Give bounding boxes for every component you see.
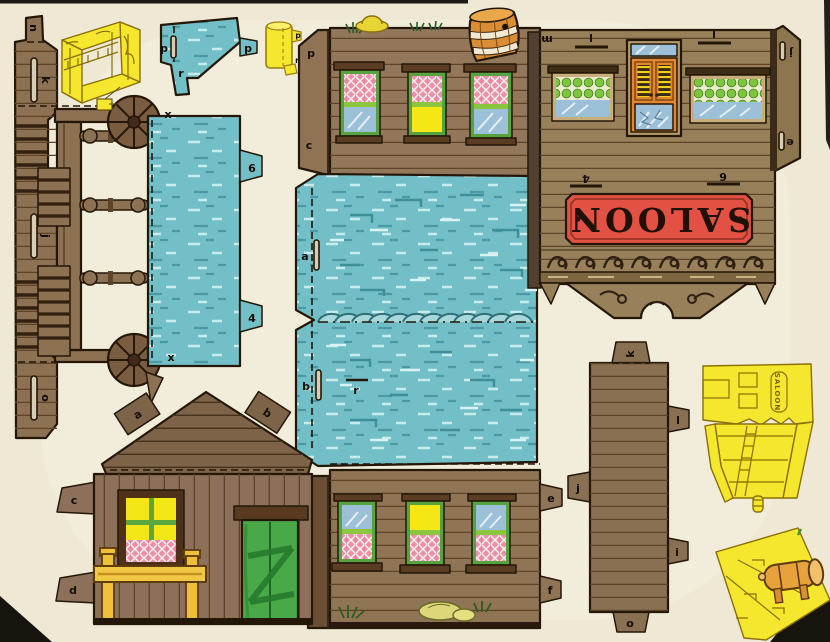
ground-line xyxy=(94,618,312,625)
window-lit xyxy=(400,494,450,573)
window xyxy=(464,64,516,145)
label-k: k xyxy=(624,350,637,358)
label-f: f xyxy=(548,584,553,597)
saloon-sign-text: SALOON xyxy=(567,200,751,239)
assembled-saloon-sketch: SALOON xyxy=(703,364,813,512)
papercraft-sheet: n k j o xyxy=(0,0,830,642)
saloon-window xyxy=(548,66,618,121)
curtain-pane xyxy=(474,76,508,104)
label-o: o xyxy=(39,394,52,402)
slot-k xyxy=(31,58,37,102)
label-m-corner: m xyxy=(541,33,552,46)
label-x-top: x xyxy=(164,108,171,121)
label-e: e xyxy=(547,492,554,505)
barrel-icon xyxy=(467,6,521,61)
label-l-right: l xyxy=(712,27,716,40)
label-d: d xyxy=(69,584,77,597)
lit-pane xyxy=(412,107,442,132)
chimney-body xyxy=(266,24,292,68)
label-k: k xyxy=(39,76,52,84)
slot-b xyxy=(316,370,321,400)
curtain-pane xyxy=(412,76,442,102)
porch-roof-panel xyxy=(148,116,240,366)
curtain-pane xyxy=(342,534,372,559)
saloon-window xyxy=(686,68,770,123)
sketch-sign-text: SALOON xyxy=(773,373,781,411)
house-door xyxy=(234,506,308,623)
circle-curtain xyxy=(556,77,610,100)
label-e: e xyxy=(786,136,793,149)
sketch-barrel xyxy=(753,496,763,512)
barrel-spout xyxy=(758,573,766,581)
circle-curtain xyxy=(694,79,762,102)
saloon-sign: SALOON xyxy=(566,194,752,244)
saloon-front-piece: j e l l m 4 6 xyxy=(528,26,800,318)
label-6: 6 xyxy=(248,162,256,175)
label-p: p xyxy=(307,47,315,60)
sheet-canvas: n k j o xyxy=(0,0,830,642)
curtain-pane xyxy=(476,535,506,561)
label-o: o xyxy=(626,617,634,630)
label-4: 4 xyxy=(582,172,590,185)
slot-j xyxy=(31,214,37,258)
label-r: r xyxy=(353,384,359,397)
label-p-tab: p xyxy=(244,42,252,55)
roof-piece: a b r xyxy=(296,174,540,466)
label-6: 6 xyxy=(719,170,727,183)
label-n: n xyxy=(27,24,40,32)
label-x-bottom: x xyxy=(167,351,174,364)
gable-slot-p xyxy=(171,36,176,58)
label-b: b xyxy=(302,380,310,393)
label-i: i xyxy=(675,546,679,559)
turned-post xyxy=(80,198,148,212)
slot-a xyxy=(314,240,319,270)
label-p: p xyxy=(295,31,301,40)
curtain-pane xyxy=(126,540,176,562)
house-window xyxy=(112,490,190,575)
label-r-tab: r xyxy=(178,67,184,80)
swing-doors xyxy=(627,40,681,136)
window xyxy=(466,494,516,573)
curtain-pane xyxy=(410,535,440,561)
flap-slot-j xyxy=(780,42,785,60)
flap-slot-e xyxy=(779,132,784,150)
slot-o xyxy=(31,376,37,420)
window xyxy=(332,494,382,571)
window xyxy=(334,62,384,143)
label-j: j xyxy=(789,46,794,59)
ground-line xyxy=(330,622,540,628)
label-a: a xyxy=(301,250,308,263)
label-c: c xyxy=(71,494,78,507)
side-wall-lower-piece: e f xyxy=(308,470,562,628)
label-j: j xyxy=(39,233,52,238)
window-lit xyxy=(402,64,450,143)
side-wall-upper-piece: p c xyxy=(299,6,540,180)
label-4: 4 xyxy=(248,312,256,325)
label-c: c xyxy=(306,139,313,152)
label-p-slot: p xyxy=(160,42,168,55)
label-l: l xyxy=(676,414,680,427)
chimney-tab-r xyxy=(284,64,297,75)
boardwalk-strip-piece: n k j o xyxy=(15,16,57,438)
label-l-left: l xyxy=(589,31,593,44)
turned-post xyxy=(80,271,148,285)
curtain-pane xyxy=(344,74,376,102)
lit-pane xyxy=(410,505,440,530)
roof-ridge xyxy=(318,314,537,322)
label-j: j xyxy=(575,482,580,495)
